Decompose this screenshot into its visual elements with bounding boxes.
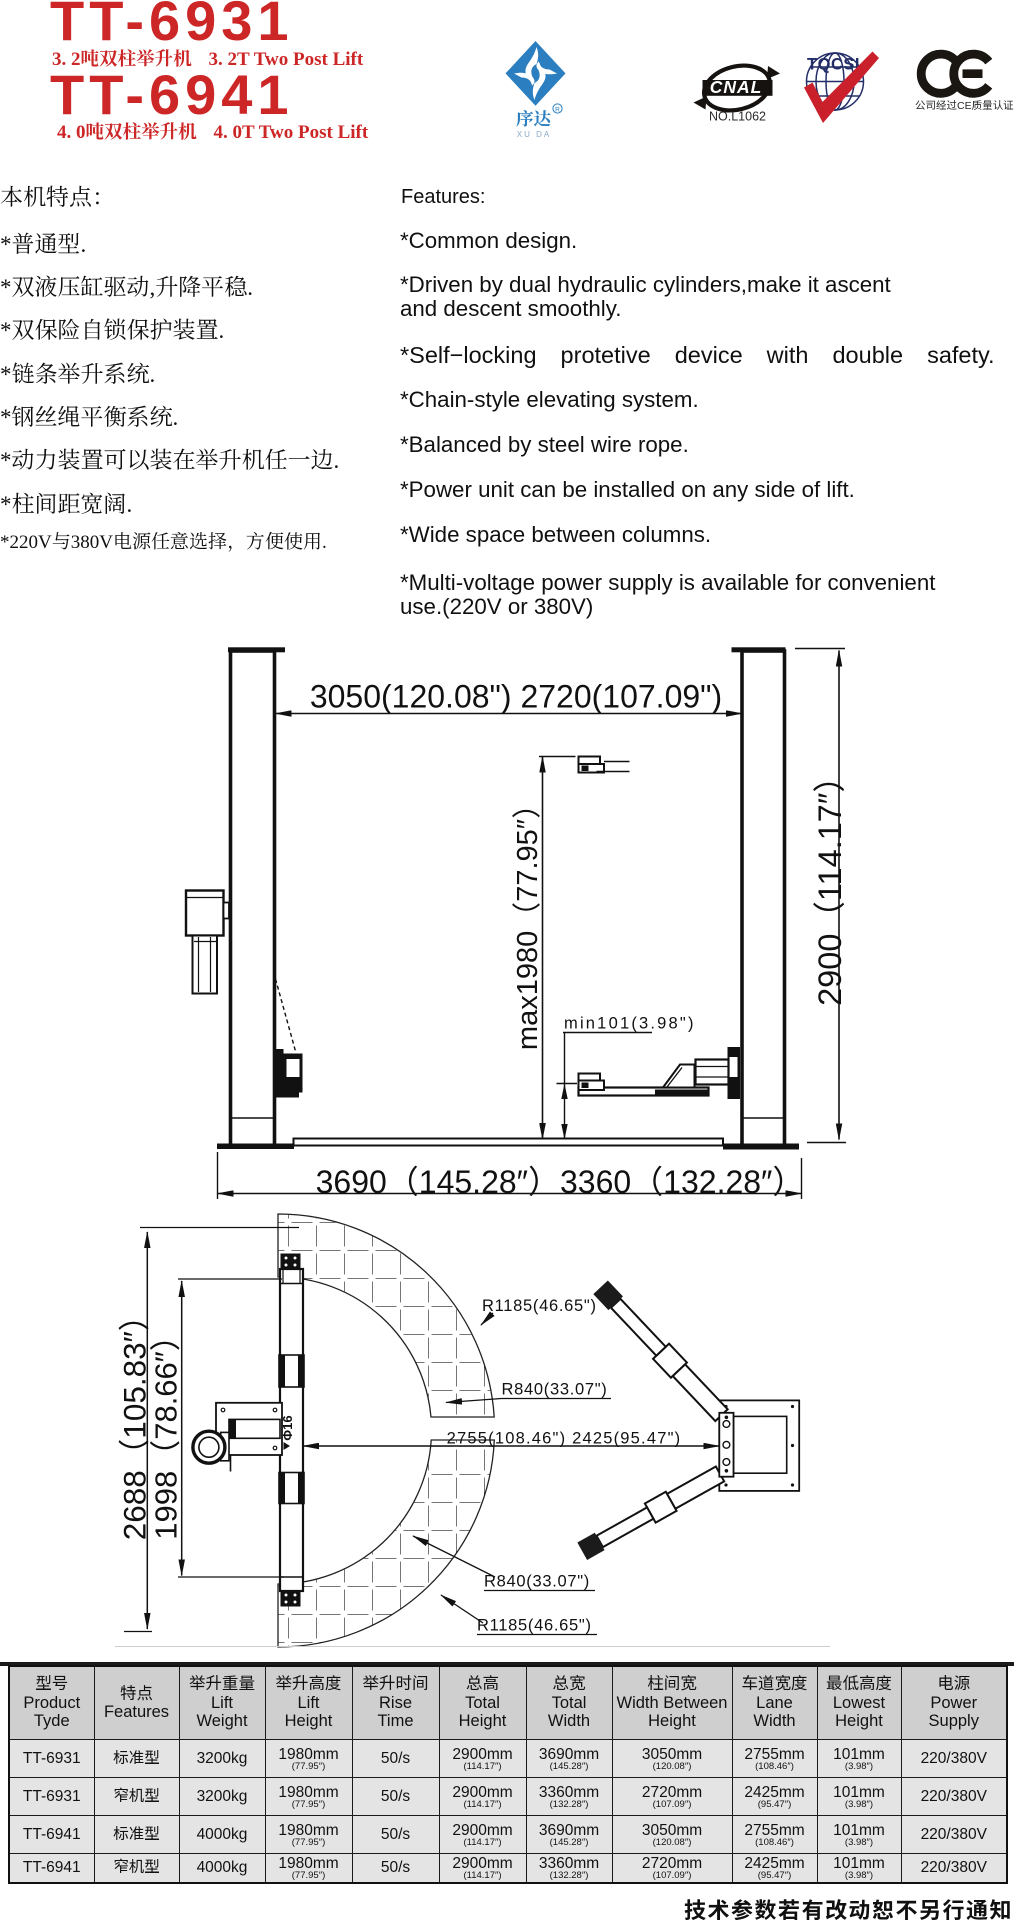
svg-text:max1980（77.95″）: max1980（77.95″） [512, 790, 544, 1050]
svg-text:R1185(46.65"): R1185(46.65") [477, 1617, 592, 1635]
svg-text:3050(120.08") 2720(107.09"): 3050(120.08") 2720(107.09") [310, 679, 722, 715]
svg-text:min101(3.98"): min101(3.98") [564, 1015, 696, 1033]
svg-text:2688（105.83″）: 2688（105.83″） [117, 1300, 153, 1541]
svg-text:R1185(46.65"): R1185(46.65") [482, 1297, 597, 1315]
svg-text:2900（114.17″）: 2900（114.17″） [812, 760, 848, 1006]
svg-text:R840(33.07"): R840(33.07") [502, 1381, 608, 1399]
svg-text:R840(33.07"): R840(33.07") [484, 1573, 590, 1591]
svg-text:3690（145.28″）3360（132.28″）: 3690（145.28″）3360（132.28″） [316, 1164, 805, 1200]
svg-text:Φ16: Φ16 [280, 1415, 295, 1440]
svg-text:1998（78.66″）: 1998（78.66″） [149, 1320, 184, 1540]
svg-text:2755(108.46") 2425(95.47"): 2755(108.46") 2425(95.47") [447, 1430, 682, 1448]
